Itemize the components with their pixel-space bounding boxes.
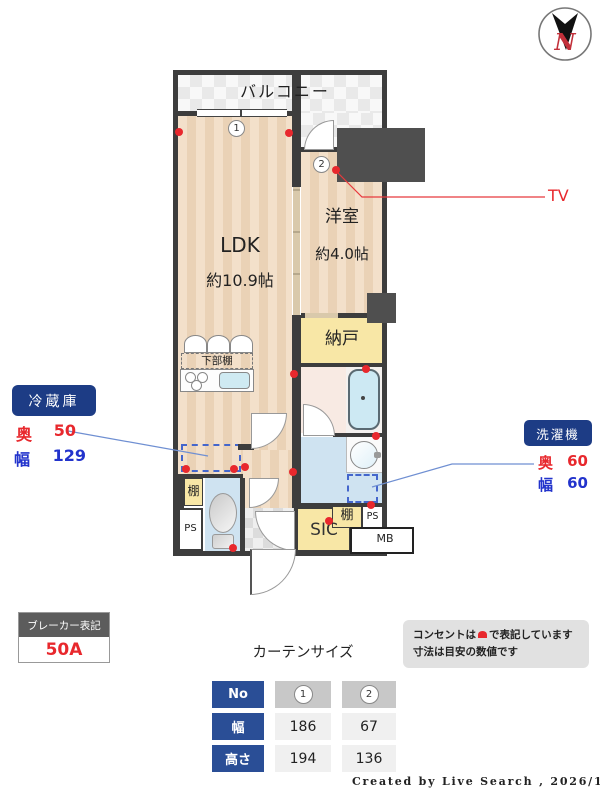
wall <box>240 478 245 551</box>
entrance-main-door <box>250 549 296 595</box>
curtain-row-no-c2: 2 <box>342 681 396 708</box>
floor-plan-page: バルコニー LDK 約10.9帖 洋室 約4.0帖 納戸 下部棚 棚 PS SI… <box>0 0 600 800</box>
fridge-width-label: 幅 <box>14 446 30 470</box>
outlet-dot <box>230 465 238 473</box>
curtain-no-1: 1 <box>294 685 313 704</box>
curtain-table-title: カーテンサイズ <box>248 646 358 662</box>
curtain-marker-2: 2 <box>313 156 330 173</box>
wall <box>292 315 301 508</box>
outlet-dot <box>325 517 333 525</box>
wall <box>301 363 382 367</box>
outlet-dot <box>362 365 370 373</box>
fridge-width-row: 幅 129 <box>14 446 86 470</box>
structural-pillar <box>337 128 425 182</box>
fridge-depth-label: 奥 <box>16 421 32 445</box>
washer-width-label: 幅 <box>538 474 553 495</box>
outlet-dot <box>241 463 249 471</box>
curtain-height-1: 194 <box>275 745 331 772</box>
fridge-depth-row: 奥 50 <box>16 421 76 445</box>
washer-width-row: 幅 60 <box>538 474 588 495</box>
curtain-no-2: 2 <box>360 685 379 704</box>
shelf-right-label: 棚 <box>335 509 359 523</box>
breaker-title: ブレーカー表記 <box>19 613 109 637</box>
washer-depth-value: 60 <box>567 452 588 473</box>
window-sash <box>197 109 287 117</box>
note-line1-pre: コンセントは <box>413 629 476 641</box>
credit-text: Created by Live Search , 2026/1 <box>352 775 596 788</box>
curtain-row-no-c1: 1 <box>275 681 331 708</box>
sliding-door <box>293 187 300 315</box>
western-room-label: 洋室 <box>315 208 369 227</box>
ldk-label: LDK <box>205 234 275 256</box>
curtain-width-1: 186 <box>275 713 331 740</box>
outlet-dot <box>289 468 297 476</box>
storage-label: 納戸 <box>314 330 370 349</box>
outlet-symbol-icon <box>478 631 487 638</box>
ldk-size-label: 約10.9帖 <box>195 272 285 290</box>
structural-pillar <box>367 293 396 323</box>
curtain-height-2: 136 <box>342 745 396 772</box>
washer-badge: 洗濯機 <box>524 420 592 446</box>
shelf-left-label: 棚 <box>186 485 201 498</box>
fridge-badge: 冷蔵庫 <box>12 385 96 416</box>
note-line1-post: で表記しています <box>489 629 573 641</box>
note-line-1: コンセントはで表記しています <box>413 627 579 644</box>
western-room-size-label: 約4.0帖 <box>305 246 379 263</box>
curtain-row-width-label: 幅 <box>212 713 264 740</box>
mb-label: MB <box>362 533 408 545</box>
washer-leader-line <box>372 464 534 487</box>
washer-depth-label: 奥 <box>538 452 553 473</box>
compass-n-label: N <box>551 30 579 55</box>
wall <box>177 474 184 508</box>
outlet-dot <box>229 544 237 552</box>
fridge-depth-value: 50 <box>54 421 76 445</box>
outlet-dot <box>290 370 298 378</box>
breaker-box: ブレーカー表記 50A <box>18 612 110 663</box>
washer-depth-row: 奥 60 <box>538 452 588 473</box>
sic-label: SIC <box>301 521 347 540</box>
breaker-value: 50A <box>19 637 109 663</box>
ps-left-label: PS <box>180 523 201 534</box>
ps-right-label: PS <box>364 512 381 522</box>
fridge-width-value: 129 <box>53 446 86 470</box>
tv-label: TV <box>548 187 584 205</box>
storage-opening <box>305 313 338 318</box>
note-line-2: 寸法は目安の数値です <box>413 644 579 661</box>
curtain-marker-1: 1 <box>228 120 245 137</box>
outlet-note-box: コンセントはで表記しています 寸法は目安の数値です <box>403 620 589 668</box>
outlet-dot <box>182 465 190 473</box>
balcony-label: バルコニー <box>230 83 340 101</box>
outlet-dot-tv <box>332 166 340 174</box>
outlet-dot <box>367 501 375 509</box>
outlet-dot <box>372 432 380 440</box>
outlet-dot <box>175 128 183 136</box>
window-sash-divider <box>240 109 242 117</box>
curtain-row-no-label: No <box>212 681 264 708</box>
outlet-dot <box>285 129 293 137</box>
curtain-width-2: 67 <box>342 713 396 740</box>
washer-width-value: 60 <box>567 474 588 495</box>
curtain-row-height-label: 高さ <box>212 745 264 772</box>
lower-shelf-label: 下部棚 <box>185 356 249 368</box>
